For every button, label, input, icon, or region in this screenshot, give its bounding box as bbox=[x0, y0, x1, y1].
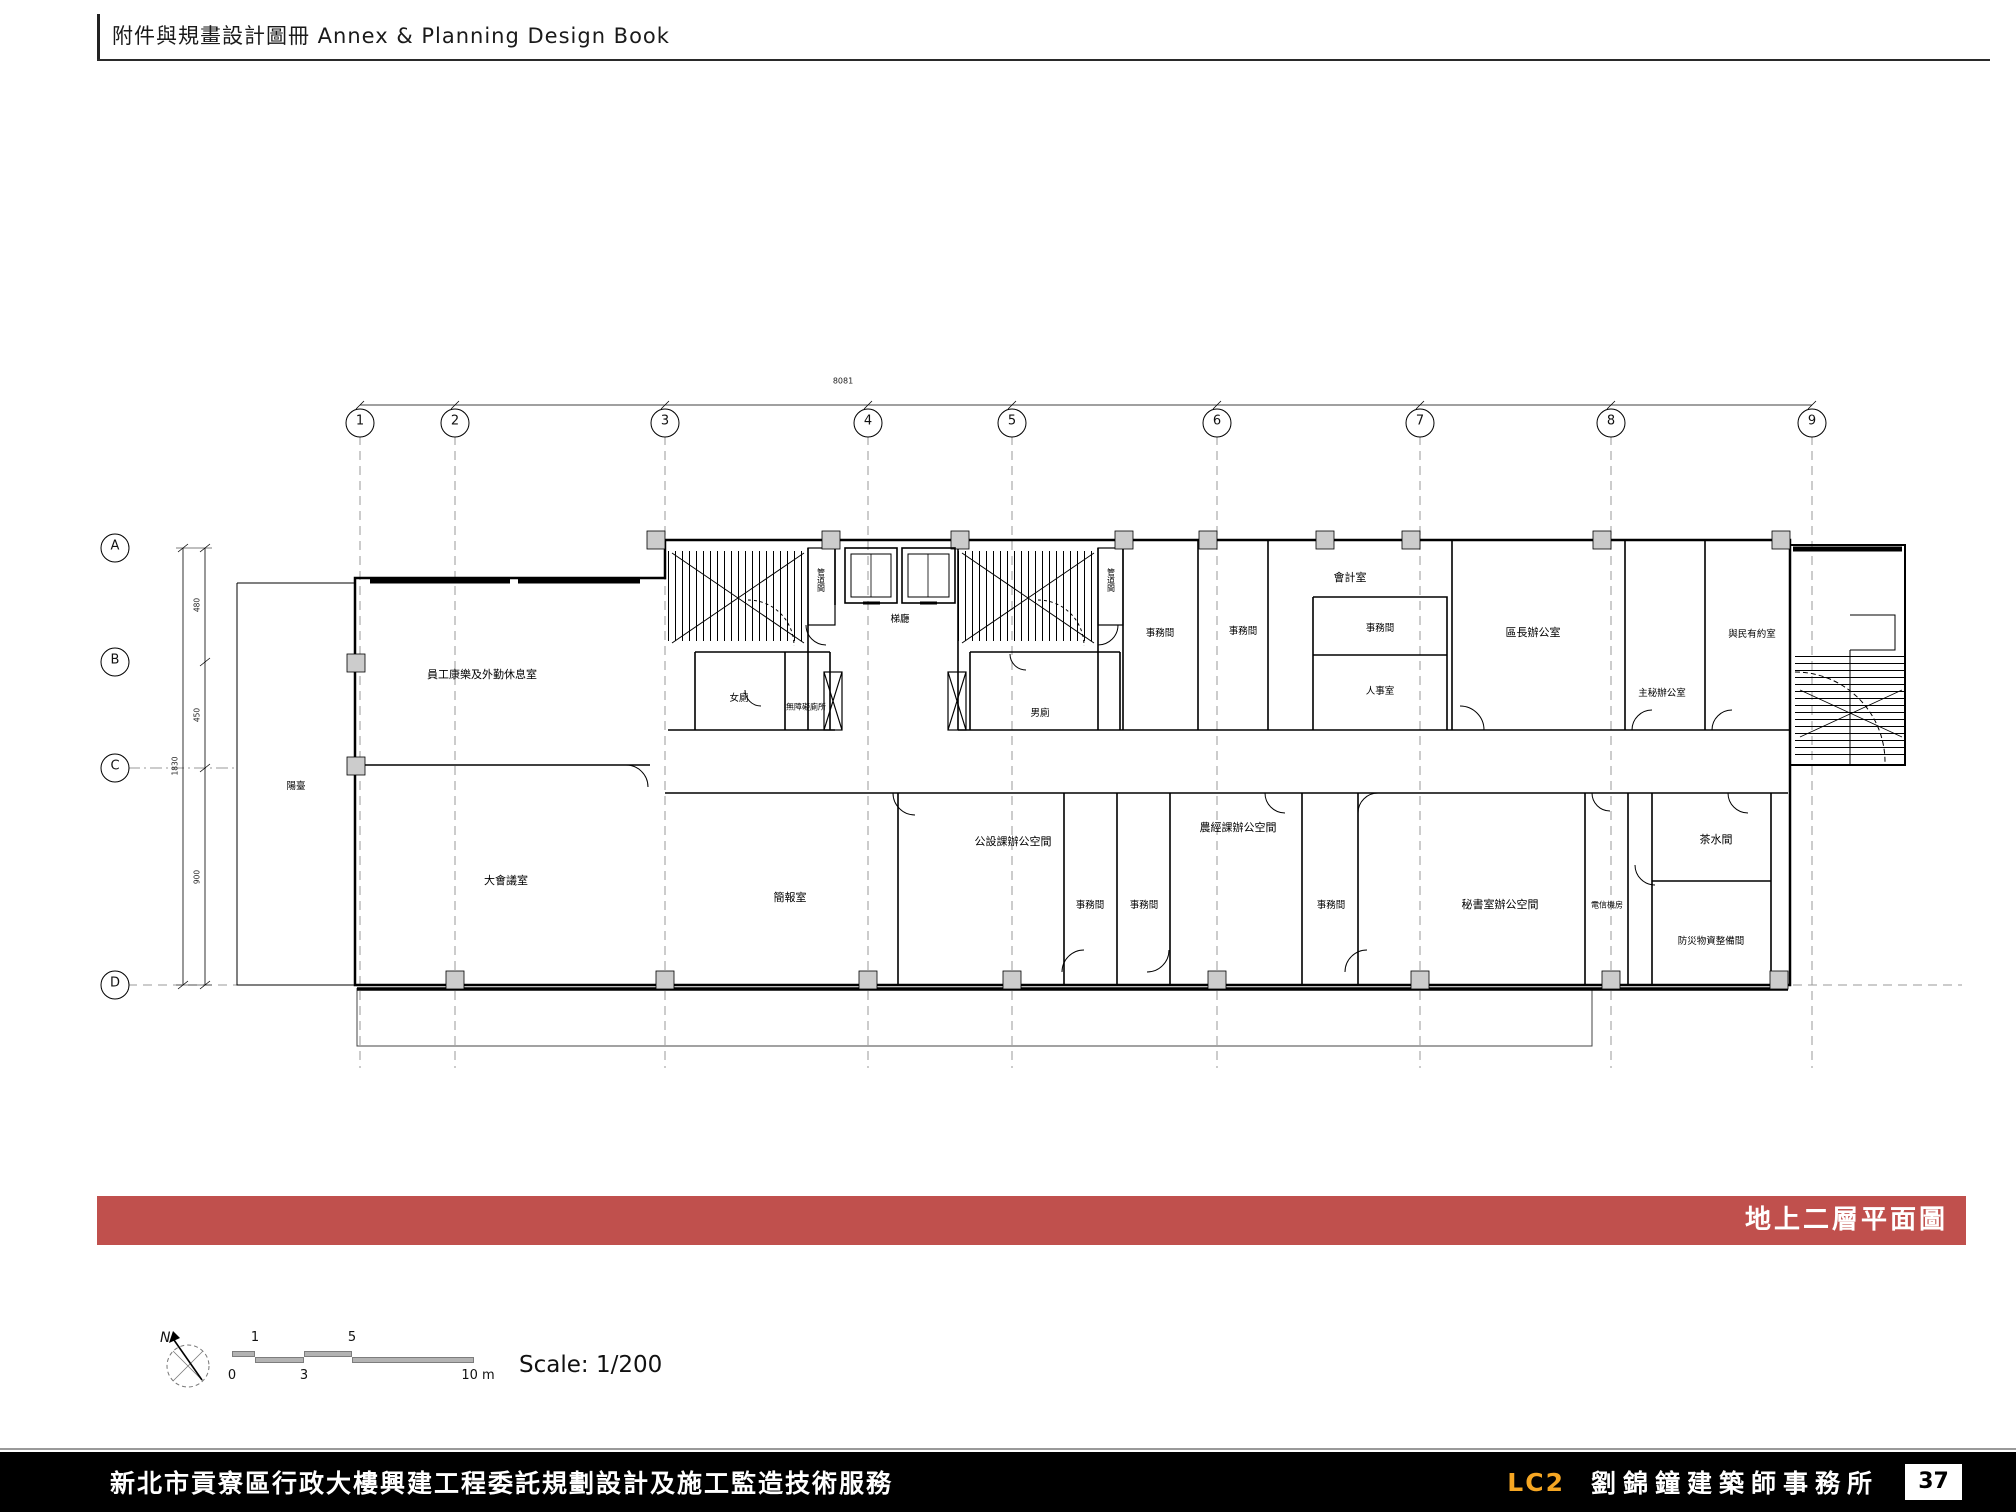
floor-title-banner: 地上二層平面圖 bbox=[97, 1196, 1966, 1245]
room-label-office-e: 事務間 bbox=[1130, 897, 1159, 911]
grid-bubble-D: D bbox=[101, 971, 130, 1000]
room-label-pantry: 茶水間 bbox=[1700, 831, 1733, 847]
footer-project-title: 新北市貢寮區行政大樓興建工程委託規劃設計及施工監造技術服務 bbox=[110, 1464, 893, 1500]
room-label-office-c: 事務間 bbox=[1366, 620, 1395, 634]
dimension-lines bbox=[176, 401, 1816, 989]
room-label-balcony: 陽臺 bbox=[286, 778, 305, 792]
grid-bubble-4: 4 bbox=[854, 409, 883, 438]
stair-treads-left bbox=[668, 551, 808, 641]
grid-bubble-B: B bbox=[101, 648, 130, 677]
room-label-pipe-shaft-right: 管道間 bbox=[1106, 568, 1117, 592]
room-label-office-b: 事務間 bbox=[1229, 623, 1258, 637]
floor-plan-drawing bbox=[0, 0, 2016, 1512]
scalebar-num-0: 0 bbox=[228, 1368, 236, 1383]
footer-firm-block: LC2 劉錦鐘建築師事務所 37 bbox=[1507, 1464, 1962, 1500]
footer-top-rule bbox=[0, 1448, 2016, 1450]
grid-bubble-7: 7 bbox=[1406, 409, 1435, 438]
room-label-agri-econ-section: 農經課辦公空間 bbox=[1200, 819, 1277, 835]
room-label-office-a: 事務間 bbox=[1146, 625, 1175, 639]
grid-bubble-1: 1 bbox=[346, 409, 375, 438]
grid-bubble-8: 8 bbox=[1597, 409, 1626, 438]
room-label-accounting: 會計室 bbox=[1334, 569, 1367, 585]
stair-lines bbox=[672, 553, 1902, 765]
room-label-personnel: 人事室 bbox=[1366, 683, 1395, 697]
elevator-symbols bbox=[845, 548, 955, 603]
dim-label-bc: 450 bbox=[193, 708, 202, 722]
room-label-pipe-shaft-left: 管道間 bbox=[816, 568, 827, 592]
stair-treads-east bbox=[1795, 655, 1905, 755]
room-label-briefing: 簡報室 bbox=[774, 889, 807, 905]
footer-firm-name: 劉錦鐘建築師事務所 bbox=[1591, 1464, 1879, 1500]
scalebar-num-1: 1 bbox=[251, 1330, 259, 1345]
room-label-elevator-hall: 梯廳 bbox=[890, 611, 909, 625]
grid-bubble-9: 9 bbox=[1798, 409, 1827, 438]
room-label-civil-section: 公設課辦公空間 bbox=[975, 833, 1052, 849]
scalebar-num-3: 3 bbox=[300, 1368, 308, 1383]
scalebar-seg-1 bbox=[232, 1351, 255, 1357]
room-label-office-f: 事務間 bbox=[1317, 897, 1346, 911]
footer-bar: 新北市貢寮區行政大樓興建工程委託規劃設計及施工監造技術服務 LC2 劉錦鐘建築師… bbox=[0, 1452, 2016, 1512]
room-label-large-conference: 大會議室 bbox=[484, 872, 528, 888]
dim-label-ab: 480 bbox=[193, 598, 202, 612]
dim-label-cd: 900 bbox=[193, 870, 202, 884]
room-label-womens-toilet: 女廁 bbox=[729, 690, 748, 704]
grid-bubble-5: 5 bbox=[998, 409, 1027, 438]
room-label-disaster-supplies: 防災物資整備間 bbox=[1678, 933, 1745, 947]
dim-label-left-total: 1830 bbox=[171, 756, 180, 775]
grid-lines bbox=[128, 436, 1962, 1068]
scalebar-num-5: 5 bbox=[348, 1330, 356, 1345]
grid-bubble-2: 2 bbox=[441, 409, 470, 438]
north-arrow-icon bbox=[140, 1320, 260, 1420]
scalebar-seg-2 bbox=[255, 1357, 304, 1363]
grid-bubble-3: 3 bbox=[651, 409, 680, 438]
room-label-accessible-toilet: 無障礙廁所 bbox=[785, 702, 827, 711]
room-label-office-d: 事務間 bbox=[1076, 897, 1105, 911]
grid-bubble-6: 6 bbox=[1203, 409, 1232, 438]
room-label-district-chief: 區長辦公室 bbox=[1506, 624, 1561, 640]
footer-firm-code: LC2 bbox=[1507, 1468, 1565, 1497]
scalebar-num-10m: 10 m bbox=[461, 1368, 494, 1383]
room-label-secretariat: 秘書室辦公空間 bbox=[1462, 896, 1539, 912]
room-label-chief-secretary: 主秘辦公室 bbox=[1638, 685, 1686, 699]
scale-label: Scale: 1/200 bbox=[519, 1352, 662, 1378]
grid-bubble-C: C bbox=[101, 754, 130, 783]
grid-bubble-A: A bbox=[101, 534, 130, 563]
page: 附件與規畫設計圖冊 Annex & Planning Design Book bbox=[0, 0, 2016, 1512]
room-label-citizen-meeting: 與民有約室 bbox=[1728, 626, 1776, 640]
scalebar-seg-3 bbox=[304, 1351, 352, 1357]
north-label: N bbox=[160, 1330, 170, 1346]
room-label-telecom-room: 電信機房 bbox=[1591, 900, 1623, 911]
stair-treads-right bbox=[958, 551, 1098, 641]
room-label-mens-toilet: 男廁 bbox=[1030, 705, 1049, 719]
page-number-badge: 37 bbox=[1905, 1464, 1962, 1500]
room-label-staff-lounge: 員工康樂及外勤休息室 bbox=[427, 666, 537, 682]
terrace-outline bbox=[357, 988, 1592, 1046]
dim-label-top-total: 8081 bbox=[833, 377, 853, 386]
scalebar-seg-4 bbox=[352, 1357, 474, 1363]
door-arcs bbox=[626, 600, 1885, 972]
